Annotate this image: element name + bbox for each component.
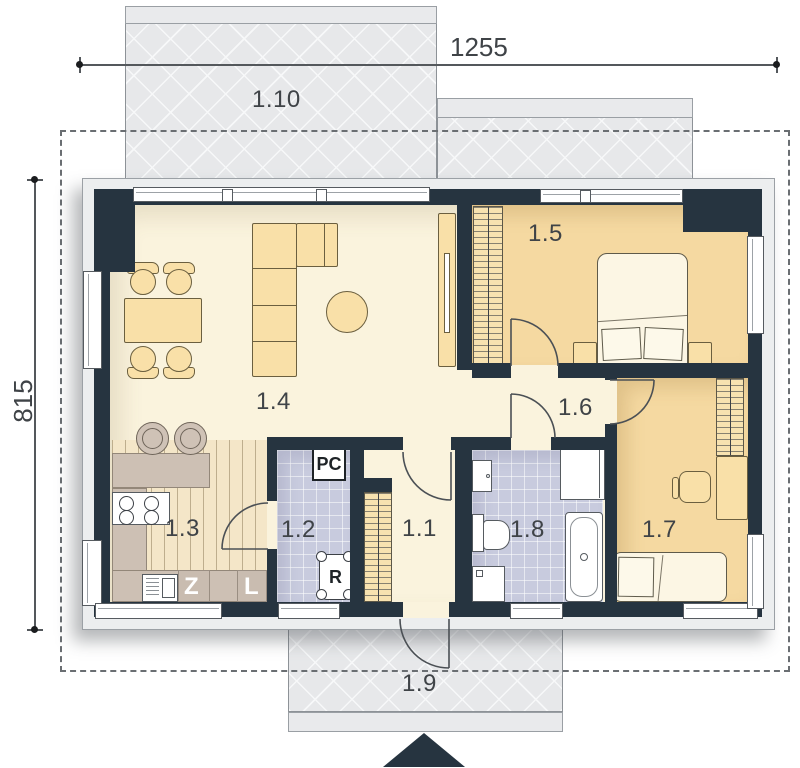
door-swing-bathroom xyxy=(511,394,555,438)
door-swing-bedroom1 xyxy=(511,319,558,366)
door-swing-hall1 xyxy=(403,452,451,500)
door-swing-entrance xyxy=(400,619,449,668)
door-swings xyxy=(0,0,800,768)
door-swing-utility xyxy=(222,503,268,549)
floor-plan: 1255 815 Z L xyxy=(0,0,800,768)
door-swing-bedroom2 xyxy=(610,380,654,424)
